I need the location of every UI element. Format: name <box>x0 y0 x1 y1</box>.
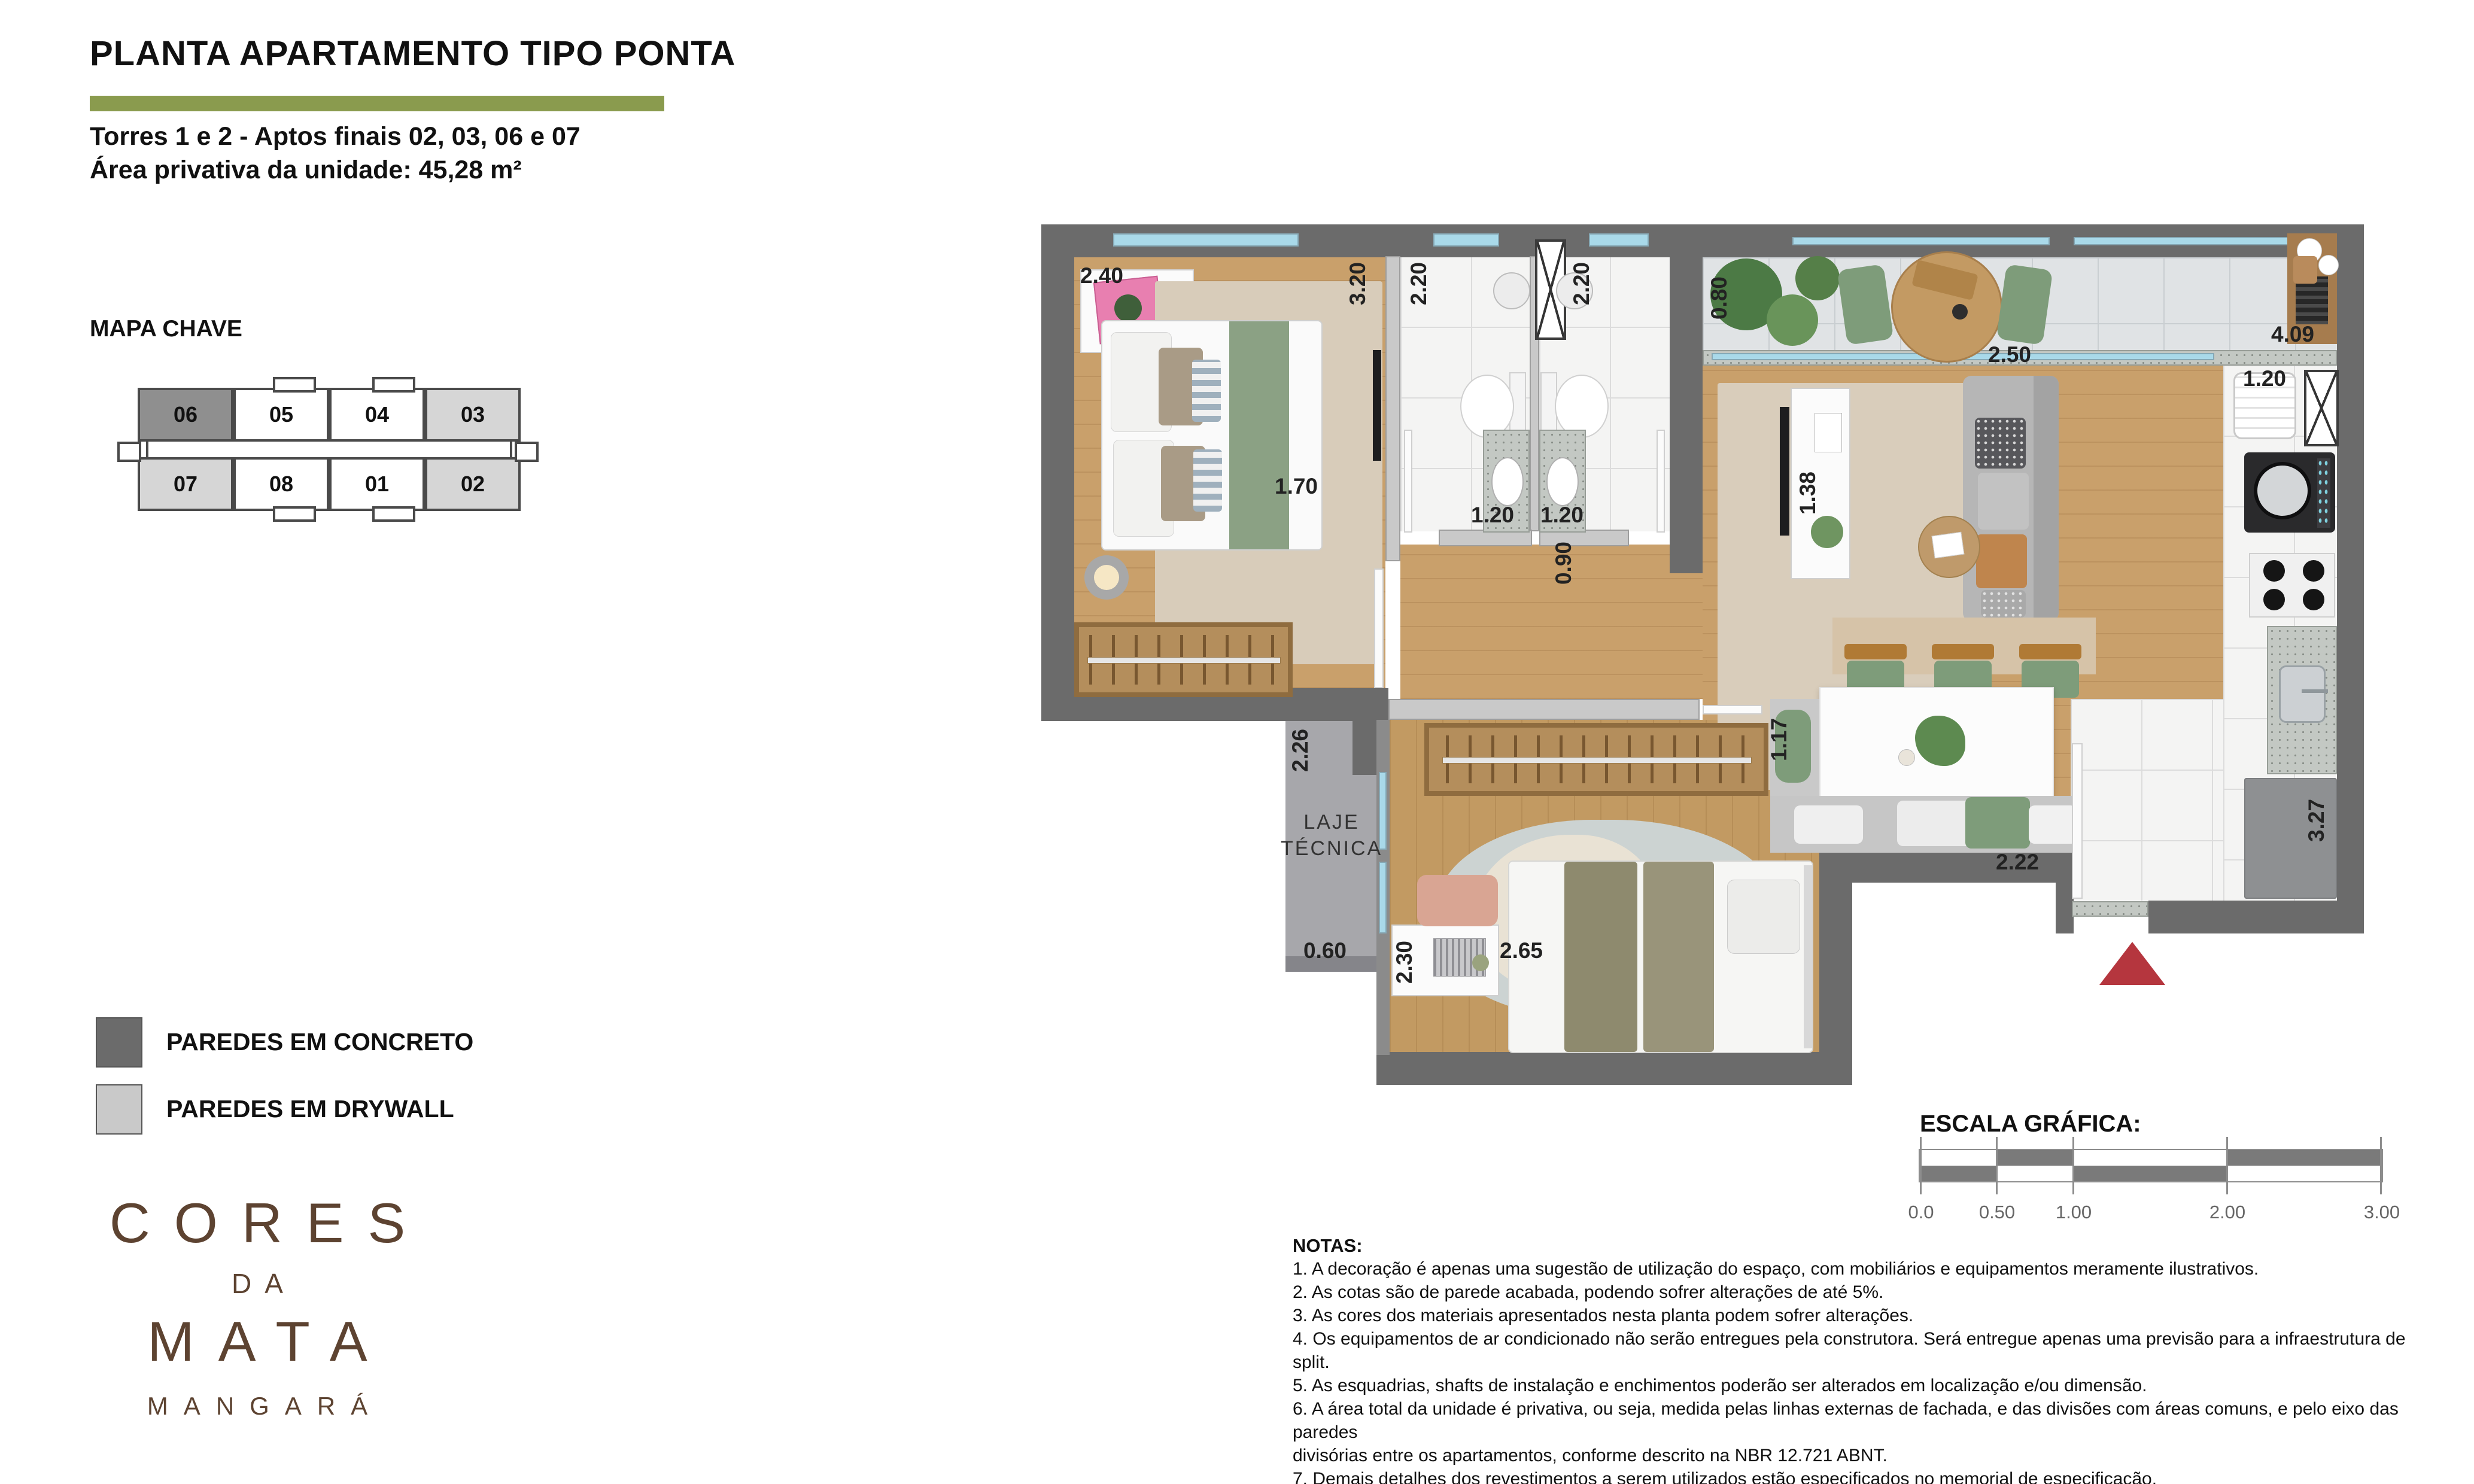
bench-pillow <box>1794 805 1863 844</box>
note-line: 5. As esquadrias, shafts de instalação e… <box>1293 1374 2430 1397</box>
bed2-blanket-2 <box>1643 862 1714 1052</box>
note-line: 6. A área total da unidade é privativa, … <box>1293 1397 2430 1444</box>
bench-pillow-green <box>1965 797 2030 849</box>
scale-label-200: 2.00 <box>2209 1202 2245 1223</box>
dim-1-20-bath2: 1.20 <box>1540 503 1584 528</box>
bed-pillow-striped <box>1192 360 1221 422</box>
dim-1-20-bath1: 1.20 <box>1471 503 1514 528</box>
bathroom2-sink <box>1546 457 1579 506</box>
dim-2-65: 2.65 <box>1500 938 1543 963</box>
notes-section: NOTAS: 1. A decoração é apenas uma suges… <box>1293 1234 2430 1484</box>
scale-bar-title: ESCALA GRÁFICA: <box>1920 1111 2141 1138</box>
entry-door <box>2072 743 2083 899</box>
wall-bath2-right <box>1670 256 1703 573</box>
wall-kitchen-bottom <box>2148 901 2364 933</box>
bathroom2-window <box>1589 233 1649 247</box>
bedroom2-chair <box>1417 875 1498 926</box>
scale-segment <box>2074 1166 2227 1181</box>
wall-right <box>2337 224 2364 933</box>
scale-segment <box>1920 1166 1997 1181</box>
bedroom2-bed <box>1508 860 1813 1053</box>
wall-bedroom2-top-a <box>1388 699 1700 720</box>
dim-2-20-bath2: 2.20 <box>1569 262 1594 305</box>
barbecue-grill-icon <box>2296 276 2328 324</box>
sofa-cushion-houndstooth <box>1975 418 2026 469</box>
island-cup <box>1898 749 1915 766</box>
tv-rack-book <box>1815 413 1842 452</box>
kitchen-sink <box>2279 665 2326 723</box>
sofa <box>1963 376 2059 621</box>
sofa-cushion-gray <box>1978 473 2029 530</box>
scale-segment <box>1920 1150 1997 1166</box>
dim-0-60: 0.60 <box>1303 938 1347 963</box>
grill-plate-small <box>2318 255 2339 275</box>
kitchen-shaft-icon <box>2304 370 2339 446</box>
wall-entry-jog <box>2056 883 2074 933</box>
dim-3-27: 3.27 <box>2304 799 2329 842</box>
bedroom1-window <box>1113 233 1299 247</box>
stove-burner <box>2303 560 2324 582</box>
dim-2-26: 2.26 <box>1288 729 1313 772</box>
bed-green-runner <box>1229 321 1289 549</box>
dim-1-17: 1.17 <box>1767 718 1792 761</box>
tv-rack-plant <box>1811 516 1843 548</box>
bedroom1-bed <box>1101 320 1323 551</box>
bedroom2-closet <box>1424 723 1768 796</box>
dim-1-20-laundry: 1.20 <box>2243 366 2286 391</box>
note-line: 7. Demais detalhes dos revestimentos a s… <box>1293 1467 2430 1484</box>
wall-left <box>1041 224 1074 721</box>
note-line: 4. Os equipamentos de ar condicionado nã… <box>1293 1327 2430 1374</box>
bench-horizontal <box>1770 796 2080 853</box>
scale-tick <box>1996 1137 1998 1194</box>
scale-tick <box>2072 1137 2074 1194</box>
bedroom1-closet <box>1074 622 1293 697</box>
note-line: 2. As cotas são de parede acabada, poden… <box>1293 1281 2430 1304</box>
wall-living-bottom <box>1852 850 2074 883</box>
dim-4-09: 4.09 <box>2271 322 2314 347</box>
bedroom1-tv <box>1373 350 1381 461</box>
scale-tick <box>1920 1137 1922 1194</box>
kitchen-faucet <box>2302 689 2328 693</box>
terrace-table-item <box>1952 304 1968 320</box>
closet-bar <box>1442 757 1751 764</box>
wall-bedroom1-bath <box>1385 256 1400 561</box>
entry-marker-triangle-icon <box>2099 942 2165 985</box>
scale-segment <box>2227 1166 2382 1181</box>
scale-label-300: 3.00 <box>2364 1202 2400 1223</box>
grill-egg-tray <box>2293 256 2317 284</box>
note-line: divisórias entre os apartamentos, confor… <box>1293 1444 2430 1467</box>
stove-burner <box>2263 589 2285 610</box>
dim-2-40: 2.40 <box>1080 263 1123 288</box>
dim-2-20-bath1: 2.20 <box>1406 262 1431 305</box>
bathroom1-shower-icon <box>1493 272 1530 309</box>
bedroom1-plant <box>1114 294 1142 322</box>
scale-label-050: 0.50 <box>1979 1202 2015 1223</box>
bedroom1-door <box>1374 568 1384 688</box>
washing-machine-drum <box>2254 462 2311 519</box>
bed-pillow-striped <box>1193 449 1222 512</box>
dim-2-22: 2.22 <box>1996 850 2039 875</box>
wall-bedroom2-bottom <box>1376 1052 1852 1085</box>
bedroom2-door <box>1703 705 1762 714</box>
entry-threshold <box>2072 901 2148 917</box>
stove <box>2249 553 2335 618</box>
sofa-cushion-small <box>1981 590 2026 618</box>
scale-segment <box>2074 1150 2227 1166</box>
bed2-headboard <box>1804 865 1812 1048</box>
bathroom1-door <box>1404 430 1412 533</box>
closet-bar <box>1087 657 1281 664</box>
stool-back-2 <box>1932 644 1994 659</box>
notes-title: NOTAS: <box>1293 1234 2430 1257</box>
bathroom1-sink <box>1491 457 1524 506</box>
terrace-rail-a <box>1792 237 2050 245</box>
laje-label-line2: TÉCNICA <box>1281 835 1382 862</box>
note-line: 1. A decoração é apenas uma sugestão de … <box>1293 1257 2430 1281</box>
bathroom2-door <box>1657 430 1665 533</box>
terrace-plant-small <box>1795 256 1840 300</box>
scale-bar: 0.0 0.50 1.00 2.00 3.00 <box>1920 1150 2382 1181</box>
stove-burner <box>2303 589 2324 610</box>
scale-label-100: 1.00 <box>2056 1202 2092 1223</box>
bathroom2-toilet <box>1555 375 1609 438</box>
stool-back-3 <box>2019 644 2081 659</box>
washing-machine-panel <box>2317 458 2330 528</box>
living-tv <box>1780 407 1789 536</box>
scale-tick <box>2380 1137 2382 1194</box>
bed2-pillow <box>1727 880 1800 954</box>
bed2-blanket <box>1564 862 1637 1052</box>
bathroom1-toilet <box>1460 375 1514 438</box>
bedroom1-lamp-light <box>1094 565 1119 590</box>
note-line: 3. As cores dos materiais apresentados n… <box>1293 1304 2430 1327</box>
scale-label-0: 0.0 <box>1908 1202 1934 1223</box>
bathroom1-window <box>1433 233 1499 247</box>
dim-0-80: 0.80 <box>1707 276 1732 320</box>
stove-burner <box>2263 560 2285 582</box>
bench-pillow <box>2029 805 2077 844</box>
page: PLANTA APARTAMENTO TIPO PONTA Torres 1 e… <box>0 0 2474 1484</box>
sofa-backrest <box>2034 376 2059 621</box>
side-table-note <box>1932 532 1965 559</box>
terrace-plant-medium <box>1767 294 1818 346</box>
scale-segment <box>2227 1150 2382 1166</box>
dim-3-20: 3.20 <box>1345 262 1370 305</box>
stool-back-1 <box>1844 644 1907 659</box>
dim-0-90: 0.90 <box>1551 542 1576 585</box>
scale-segment <box>1997 1166 2074 1181</box>
laje-tecnica-label: LAJE TÉCNICA <box>1281 809 1382 862</box>
desk-mouse <box>1472 954 1489 971</box>
bedroom2-window-b <box>1379 862 1387 933</box>
dim-1-38: 1.38 <box>1795 472 1820 515</box>
dim-1-70: 1.70 <box>1275 474 1318 499</box>
dim-2-30: 2.30 <box>1392 941 1417 984</box>
sofa-cushion-orange <box>1976 534 2027 588</box>
entry-floor <box>2071 699 2223 901</box>
laje-label-line1: LAJE <box>1281 809 1382 835</box>
scale-segment <box>1997 1150 2074 1166</box>
scale-tick <box>2226 1137 2228 1194</box>
dim-2-50: 2.50 <box>1988 342 2031 367</box>
